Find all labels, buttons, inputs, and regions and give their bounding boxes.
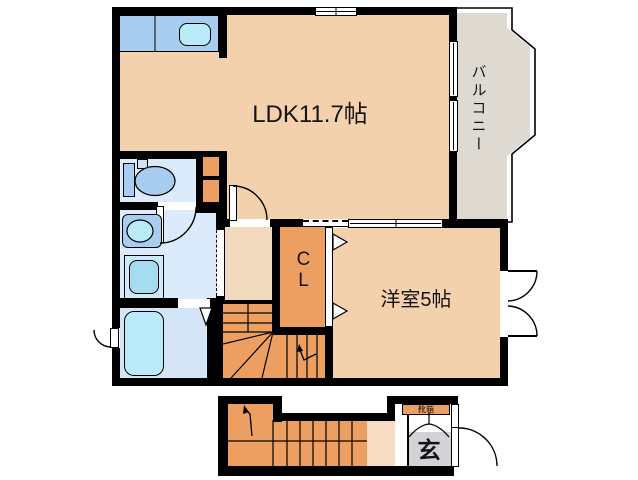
wall-1f-left <box>218 396 228 476</box>
line-hall-entrance <box>407 414 409 466</box>
wall-bottom-main <box>112 378 508 386</box>
western-room-label: 洋室5帖 <box>370 285 462 309</box>
wall-1f-bottom <box>218 466 454 476</box>
kitchen-sink <box>179 23 211 46</box>
toilet-button-box <box>137 159 148 169</box>
wall-1f-top-e <box>387 396 458 404</box>
wall-right-a <box>449 7 457 42</box>
wall-washroom-right-a <box>216 202 225 230</box>
shoe-cabinet-label: 靴箱 <box>402 404 450 415</box>
wall-left-upper <box>112 7 120 328</box>
bath-window-leaf <box>110 328 119 348</box>
wall-western-top-right <box>443 219 508 228</box>
line-hall-stairs <box>223 300 273 304</box>
wall-hall-closet <box>272 227 280 335</box>
wall-toilet-bottom <box>112 202 158 210</box>
closet-folding-door <box>325 227 333 327</box>
wall-top-left <box>112 7 315 15</box>
washing-machine-drum <box>129 260 159 294</box>
floorplan-canvas: LDK11.7帖 洋室5帖 バルコニー CL 玄 靴箱 <box>0 0 638 480</box>
wall-kitchen-stub <box>219 15 227 58</box>
sliding-door-washroom <box>216 230 225 296</box>
window-top <box>315 7 357 16</box>
wall-closet-bottom <box>272 327 333 335</box>
wall-ldk-bottom-b <box>270 219 303 227</box>
western-door-opening <box>500 271 508 337</box>
ldk-label: LDK11.7帖 <box>228 97 392 125</box>
wall-wash-bath <box>112 298 178 308</box>
entrance-label: 玄 <box>412 432 446 464</box>
wall-bath-stairs <box>207 298 223 378</box>
wall-western-right-b <box>500 337 508 386</box>
entrance-sidelight <box>451 404 459 428</box>
wall-1f-mid <box>273 413 395 421</box>
toilet-tank <box>123 163 135 197</box>
bathtub <box>124 311 164 376</box>
window-right-1 <box>449 41 458 97</box>
entrance-door-leaf <box>451 427 459 467</box>
wall-stairs-right <box>325 330 333 378</box>
opening-dashed <box>303 220 348 227</box>
wall-western-right-a <box>500 219 508 271</box>
wall-top-right <box>357 7 457 15</box>
balcony-outline <box>0 0 638 480</box>
vanity-counter <box>122 214 162 248</box>
closet-label: CL <box>292 246 314 294</box>
bath-door-opening <box>178 299 210 308</box>
balcony-label: バルコニー <box>467 46 489 172</box>
wall-right-b <box>449 151 457 222</box>
wall-toilet-top <box>112 151 203 159</box>
window-right-2 <box>449 100 458 152</box>
sliding-door-ldk-western <box>348 219 443 228</box>
ldk-door-leaf <box>229 185 237 221</box>
